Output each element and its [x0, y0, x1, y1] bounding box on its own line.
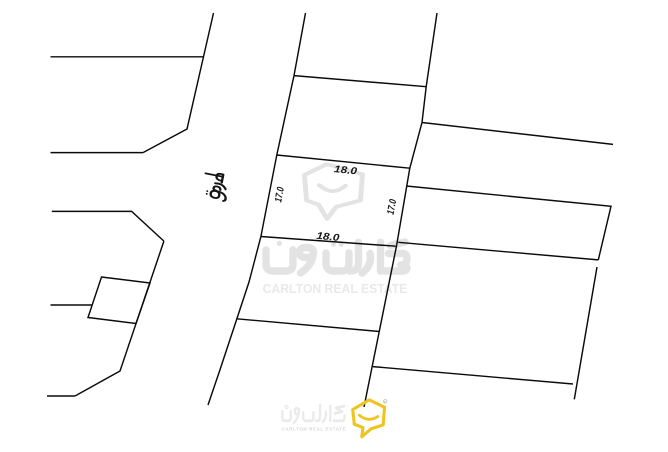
- svg-text:CARLTON REAL ESTATE: CARLTON REAL ESTATE: [263, 281, 408, 296]
- svg-text:18.0: 18.0: [334, 164, 358, 177]
- svg-text:18.0: 18.0: [316, 231, 340, 244]
- svg-text:17.0: 17.0: [273, 186, 287, 204]
- svg-text:17.0: 17.0: [386, 198, 400, 216]
- svg-text:CARLTON REAL ESTATE: CARLTON REAL ESTATE: [282, 427, 347, 432]
- svg-text:R: R: [384, 400, 386, 404]
